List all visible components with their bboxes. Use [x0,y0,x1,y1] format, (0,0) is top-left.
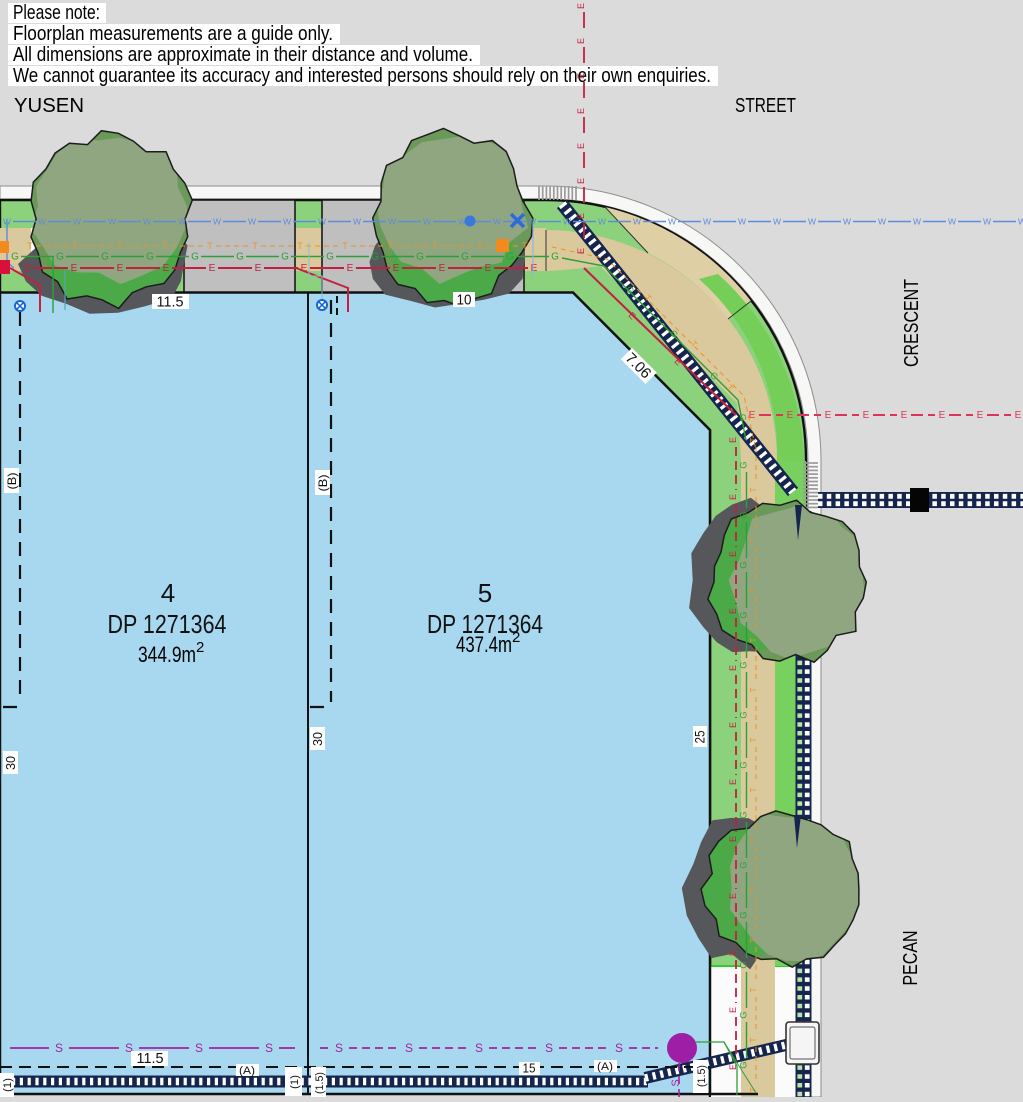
svg-text:30: 30 [3,756,18,770]
svg-text:E: E [209,263,216,274]
svg-text:T: T [748,937,758,942]
svg-text:E: E [728,893,738,899]
svg-text:All dimensions are approximate: All dimensions are approximate in their … [13,44,473,66]
svg-text:5: 5 [478,578,492,608]
svg-text:T: T [162,241,168,251]
svg-text:W: W [773,217,781,227]
svg-text:11.5: 11.5 [137,1050,164,1067]
svg-text:S: S [615,1041,623,1055]
svg-text:E: E [576,73,586,79]
svg-text:W: W [1018,217,1023,227]
svg-text:E: E [576,3,586,9]
svg-text:W: W [388,217,396,227]
svg-text:T: T [748,637,758,642]
svg-text:344.9m: 344.9m [138,642,196,667]
svg-text:10: 10 [457,292,472,309]
svg-text:T: T [748,587,758,592]
svg-text:G: G [739,861,750,868]
svg-text:(A): (A) [597,1061,613,1073]
svg-text:W: W [423,217,431,227]
svg-text:S: S [670,1079,682,1086]
svg-text:E: E [728,608,738,614]
svg-text:W: W [213,217,221,227]
svg-text:2: 2 [196,639,204,656]
svg-text:T: T [748,537,758,542]
svg-text:E: E [255,263,262,274]
svg-text:(1.5): (1.5) [696,1065,708,1087]
svg-text:T: T [477,241,483,251]
svg-text:T: T [72,241,78,251]
svg-text:E: E [439,263,446,274]
svg-text:G: G [739,461,750,468]
svg-text:G: G [739,661,750,668]
svg-text:Floorplan measurements are a g: Floorplan measurements are a guide only. [13,23,333,45]
svg-text:W: W [108,217,116,227]
svg-text:S: S [475,1041,483,1055]
svg-text:E: E [728,722,738,728]
svg-text:T: T [117,241,123,251]
svg-text:W: W [38,217,46,227]
svg-text:W: W [913,217,921,227]
svg-text:S: S [195,1041,203,1055]
svg-text:T: T [522,241,528,251]
svg-text:W: W [563,217,571,227]
svg-text:T: T [297,241,303,251]
svg-text:T: T [387,241,393,251]
svg-text:E: E [531,263,538,274]
svg-text:30: 30 [310,732,325,746]
svg-text:W: W [493,217,501,227]
svg-text:W: W [808,217,816,227]
svg-text:T: T [207,241,213,251]
svg-text:G: G [236,252,244,263]
svg-text:G: G [739,911,750,918]
svg-text:W: W [878,217,886,227]
svg-text:E: E [576,108,586,114]
svg-text:T: T [27,241,33,251]
svg-text:E: E [117,263,124,274]
svg-text:(1): (1) [2,1078,14,1092]
svg-text:(1): (1) [289,1075,301,1089]
svg-text:(A): (A) [239,1065,255,1077]
svg-text:G: G [551,252,559,263]
svg-text:G: G [739,711,750,718]
svg-text:G: G [191,252,199,263]
svg-text:25: 25 [692,730,708,743]
svg-text:S: S [335,1041,343,1055]
svg-text:T: T [432,241,438,251]
svg-text:4: 4 [161,578,175,608]
svg-text:YUSEN: YUSEN [14,95,84,117]
svg-text:T: T [748,687,758,692]
svg-text:W: W [283,217,291,227]
svg-text:E: E [25,263,32,274]
svg-text:E: E [728,1007,738,1013]
svg-text:T: T [748,987,758,992]
svg-text:(1.5): (1.5) [314,1072,326,1094]
svg-text:E: E [977,410,984,421]
svg-text:E: E [576,38,586,44]
svg-text:2: 2 [512,629,520,646]
svg-text:G: G [371,252,379,263]
svg-text:E: E [163,263,170,274]
svg-text:W: W [353,217,361,227]
svg-text:W: W [738,217,746,227]
svg-text:STREET: STREET [735,95,796,117]
svg-text:W: W [948,217,956,227]
svg-text:W: W [248,217,256,227]
svg-text:G: G [739,1011,750,1018]
svg-text:T: T [748,887,758,892]
svg-text:W: W [598,217,606,227]
svg-text:G: G [11,252,19,263]
svg-text:T: T [748,437,758,442]
svg-text:E: E [576,143,586,149]
svg-text:G: G [101,252,109,263]
svg-text:G: G [739,611,750,618]
svg-text:E: E [939,410,946,421]
svg-text:W: W [143,217,151,227]
svg-text:W: W [318,217,326,227]
svg-text:E: E [728,494,738,500]
svg-text:(B): (B) [5,473,19,490]
svg-text:437.4m: 437.4m [456,632,512,657]
svg-text:W: W [73,217,81,227]
svg-text:E: E [901,410,908,421]
svg-text:E: E [728,437,738,443]
svg-text:E: E [71,263,78,274]
svg-text:G: G [739,511,750,518]
svg-text:E: E [728,950,738,956]
svg-text:(B): (B) [316,475,330,492]
svg-text:G: G [326,252,334,263]
svg-text:E: E [576,213,586,219]
svg-text:G: G [56,252,64,263]
svg-text:S: S [265,1041,273,1055]
svg-text:E: E [825,410,832,421]
svg-text:We cannot guarantee its accura: We cannot guarantee its accuracy and int… [13,65,711,87]
svg-text:15: 15 [523,1061,536,1076]
svg-text:E: E [1015,410,1022,421]
svg-text:T: T [748,1037,758,1042]
svg-text:W: W [528,217,536,227]
svg-text:W: W [668,217,676,227]
svg-text:E: E [576,248,586,254]
svg-text:G: G [506,252,514,263]
svg-text:W: W [178,217,186,227]
svg-text:S: S [55,1041,63,1055]
svg-text:G: G [739,761,750,768]
svg-text:PECAN: PECAN [900,931,922,986]
svg-text:S: S [545,1041,553,1055]
svg-text:E: E [347,263,354,274]
svg-text:E: E [728,665,738,671]
svg-text:G: G [281,252,289,263]
svg-text:G: G [739,961,750,968]
svg-text:G: G [416,252,424,263]
svg-text:T: T [748,787,758,792]
svg-text:T: T [342,241,348,251]
svg-text:S: S [405,1041,413,1055]
svg-text:E: E [728,779,738,785]
svg-text:CRESCENT: CRESCENT [901,279,923,367]
svg-text:E: E [863,410,870,421]
svg-text:DP 1271364: DP 1271364 [108,609,227,639]
svg-text:T: T [252,241,258,251]
svg-text:W: W [703,217,711,227]
svg-text:T: T [748,837,758,842]
svg-text:E: E [787,410,794,421]
svg-text:E: E [576,178,586,184]
svg-text:E: E [485,263,492,274]
svg-text:G: G [146,252,154,263]
svg-text:E: E [749,410,756,421]
svg-text:T: T [748,737,758,742]
svg-text:W: W [843,217,851,227]
svg-text:G: G [461,252,469,263]
svg-text:11.5: 11.5 [157,294,184,311]
svg-text:E: E [728,551,738,557]
svg-text:Please note:: Please note: [13,2,100,24]
svg-text:T: T [748,487,758,492]
svg-text:G: G [739,811,750,818]
svg-text:E: E [728,836,738,842]
svg-text:W: W [633,217,641,227]
svg-text:E: E [393,263,400,274]
svg-text:W: W [983,217,991,227]
svg-text:G: G [739,561,750,568]
